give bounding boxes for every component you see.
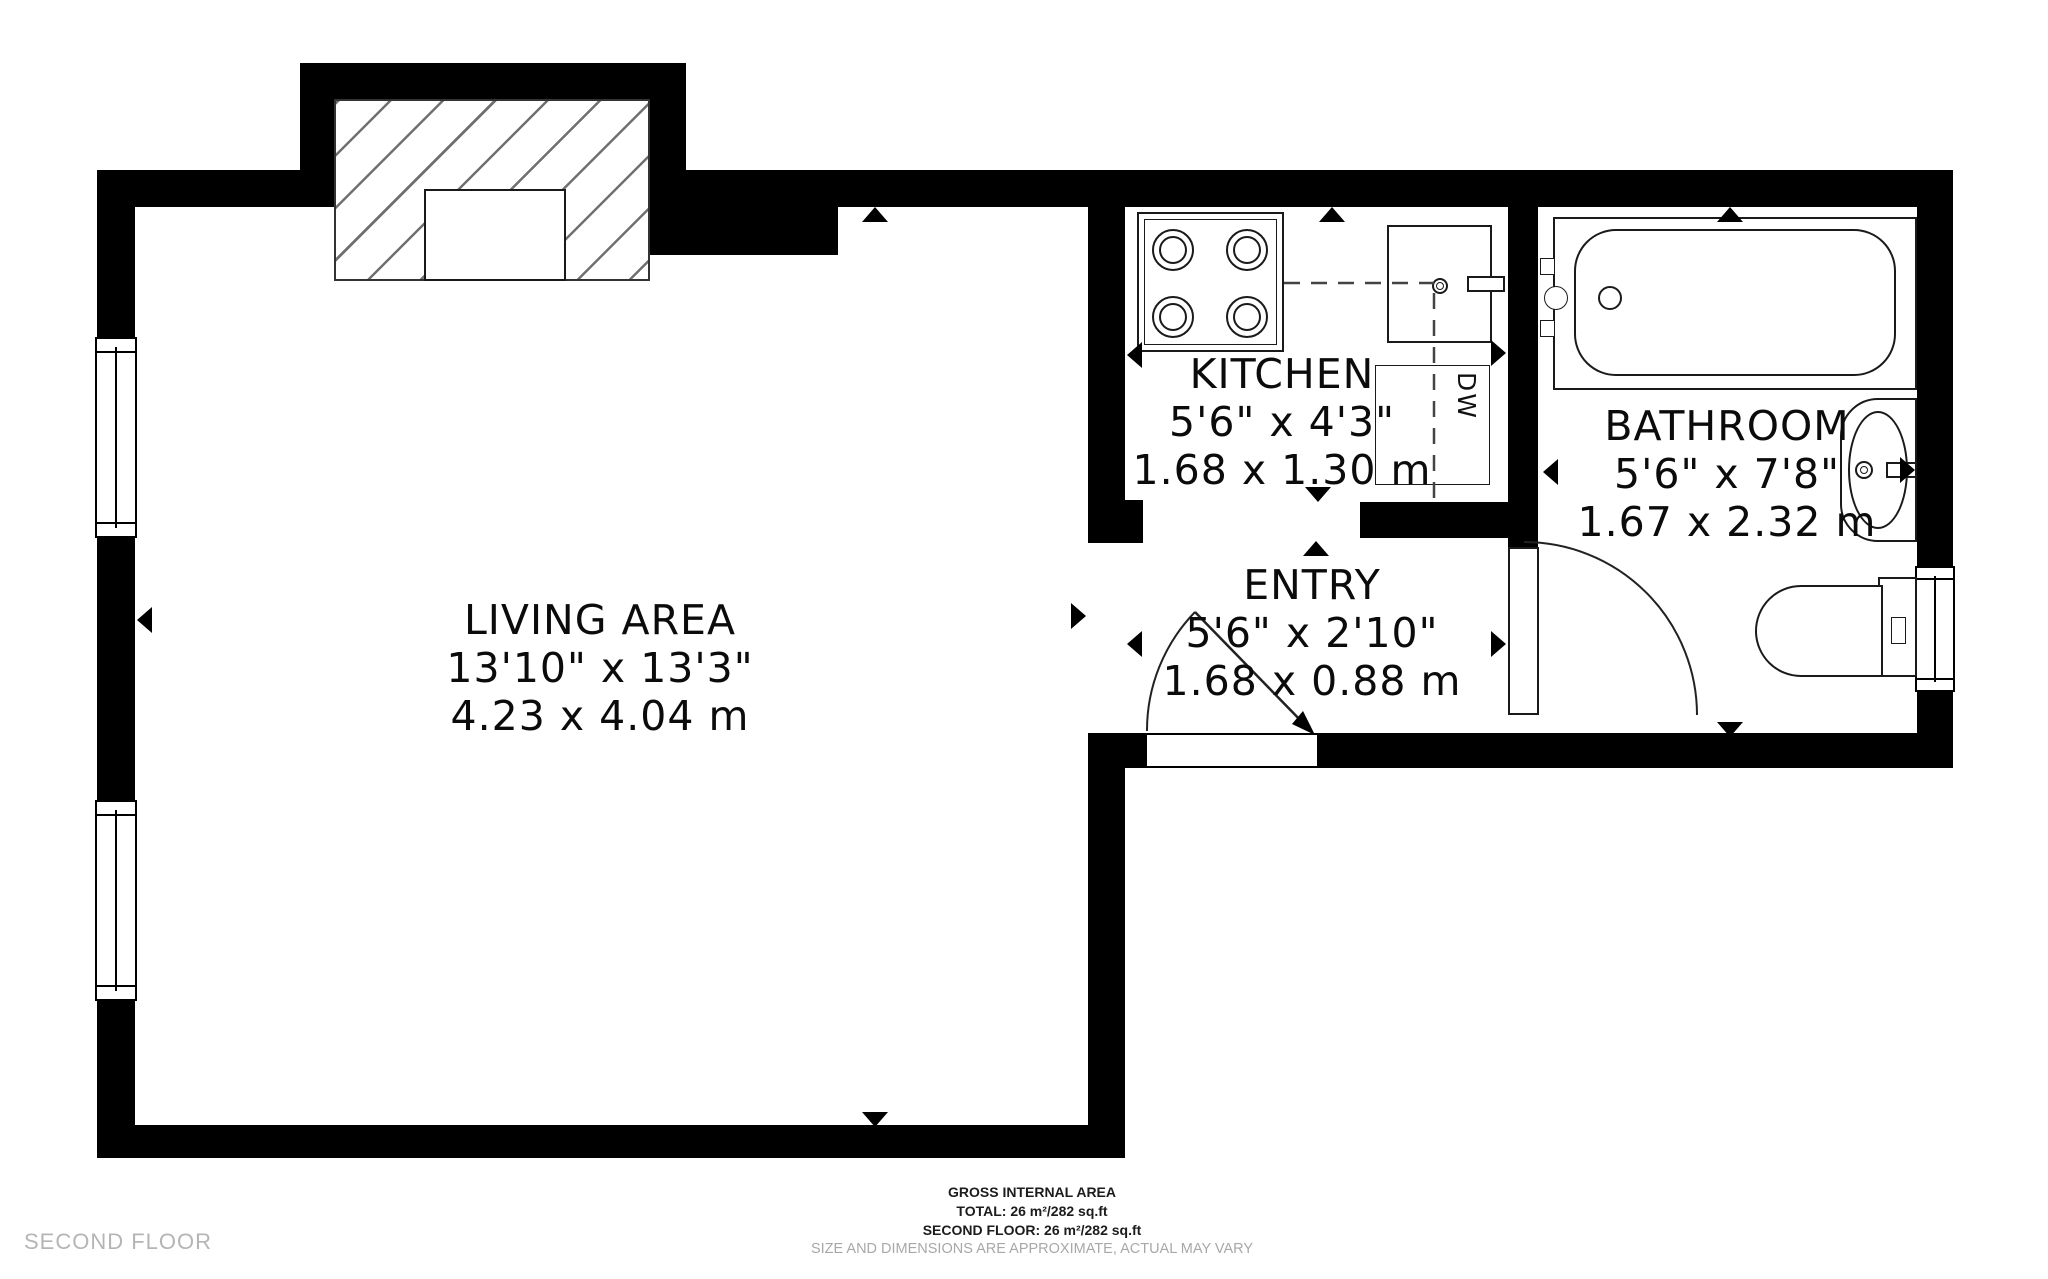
- arrow-left-icon: [1543, 459, 1558, 485]
- floor-label: SECOND FLOOR: [24, 1229, 212, 1255]
- arrow-right-icon: [1071, 603, 1086, 629]
- arrow-left-icon: [1127, 342, 1142, 368]
- floorplan-canvas: DW LIVING AREA 13'10" x 13'3" 4.23 x 4.0…: [0, 0, 2048, 1279]
- area-disclaimer: SIZE AND DIMENSIONS ARE APPROXIMATE, ACT…: [682, 1240, 1382, 1259]
- arrow-down-icon: [1305, 487, 1331, 502]
- arrow-left-icon: [1127, 631, 1142, 657]
- measure-arrow-layer: [0, 0, 2048, 1279]
- area-total: TOTAL: 26 m²/282 sq.ft: [682, 1202, 1382, 1221]
- arrow-up-icon: [862, 207, 888, 222]
- arrow-left-icon: [137, 607, 152, 633]
- area-floor-total: SECOND FLOOR: 26 m²/282 sq.ft: [682, 1221, 1382, 1240]
- arrow-down-icon: [862, 1112, 888, 1127]
- arrow-right-icon: [1900, 457, 1915, 483]
- area-summary-title: GROSS INTERNAL AREA: [682, 1183, 1382, 1202]
- arrow-down-icon: [1717, 722, 1743, 737]
- arrow-up-icon: [1717, 207, 1743, 222]
- arrow-up-icon: [1303, 541, 1329, 556]
- arrow-up-icon: [1319, 207, 1345, 222]
- arrow-right-icon: [1491, 631, 1506, 657]
- arrow-right-icon: [1491, 340, 1506, 366]
- area-summary: GROSS INTERNAL AREA TOTAL: 26 m²/282 sq.…: [682, 1183, 1382, 1259]
